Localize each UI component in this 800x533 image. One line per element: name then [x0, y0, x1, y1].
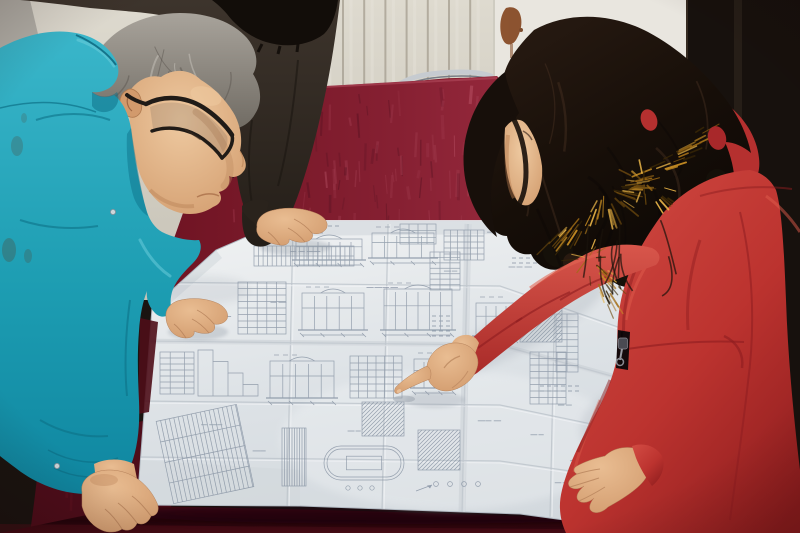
fingertip-shadow — [393, 396, 415, 403]
photo-blueprint-review — [0, 0, 800, 533]
coat-zipper — [616, 330, 630, 370]
zipper-slider — [619, 338, 628, 349]
photo-scene — [0, 0, 800, 533]
knuckle-shade — [90, 474, 118, 486]
